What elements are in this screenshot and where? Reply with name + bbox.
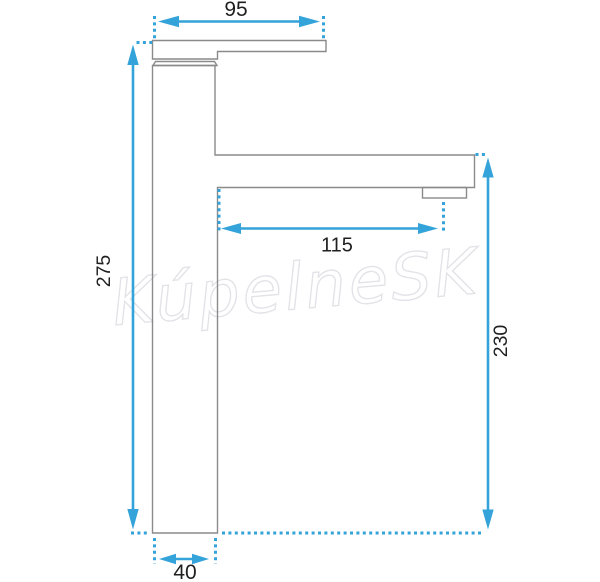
arrowhead-down-icon xyxy=(482,510,493,530)
arrowhead-left-icon xyxy=(221,223,241,234)
dimension-base-width: 40 xyxy=(155,538,216,582)
watermark: KúpelneSK xyxy=(109,235,484,341)
faucet-lever-handle xyxy=(153,41,327,60)
dimension-label-40: 40 xyxy=(173,561,196,582)
arrowhead-up-icon xyxy=(127,45,138,66)
arrowhead-right-icon xyxy=(299,16,320,27)
arrowhead-down-icon xyxy=(127,509,138,530)
watermark-text: KúpelneSK xyxy=(109,235,484,341)
dimension-label-230: 230 xyxy=(490,325,512,358)
dimension-label-95: 95 xyxy=(224,0,247,21)
dimension-spout-height: 230 xyxy=(222,155,512,534)
dimension-lever-length: 95 xyxy=(155,0,324,39)
arrowhead-left-icon xyxy=(158,16,179,27)
technical-drawing-canvas: KúpelneSK 95 2 xyxy=(0,0,600,582)
faucet-dimension-drawing: KúpelneSK 95 2 xyxy=(0,0,600,582)
dimension-label-275: 275 xyxy=(93,255,115,288)
dimension-label-115: 115 xyxy=(321,235,353,257)
arrowhead-right-icon xyxy=(418,223,438,234)
faucet-aerator xyxy=(423,188,467,199)
arrowhead-up-icon xyxy=(482,158,493,178)
